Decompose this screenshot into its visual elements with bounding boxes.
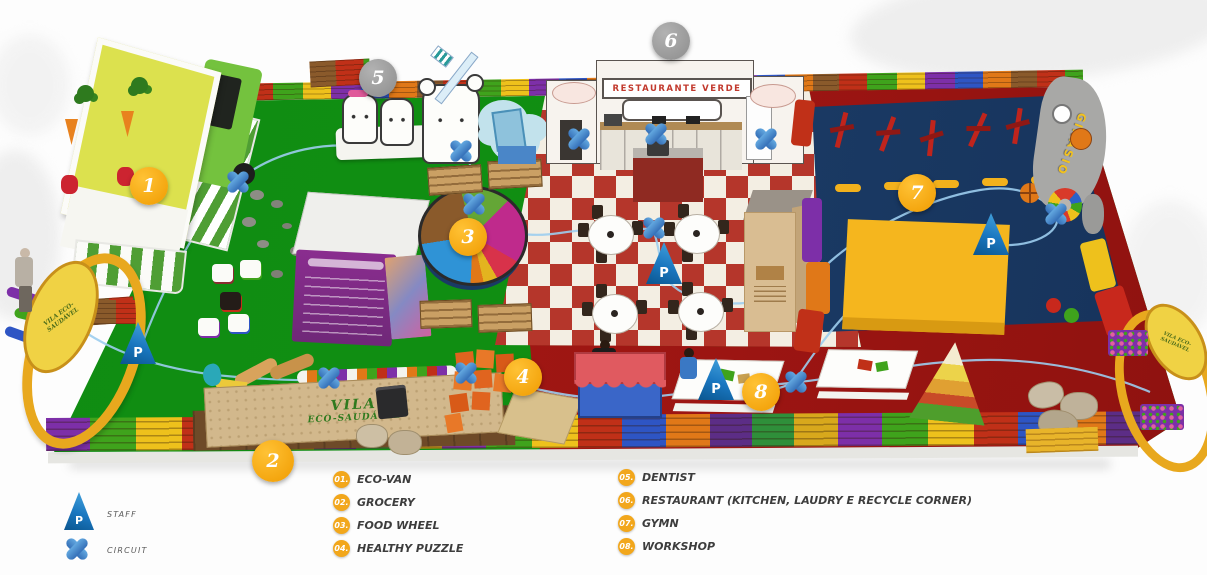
person	[12, 248, 42, 318]
legend-item-number: 08.	[618, 538, 635, 555]
cube-seat	[212, 264, 233, 282]
gym-equipment	[915, 116, 949, 161]
pallet-bench	[478, 303, 533, 333]
person	[676, 348, 706, 392]
speech-bubble	[750, 84, 796, 108]
info-booth	[290, 192, 435, 347]
gym-dashes	[835, 184, 861, 192]
legend-item-number: 04.	[333, 540, 350, 557]
legend-item-label: WORKSHOP	[642, 540, 715, 553]
legend-item: 04.HEALTHY PUZZLE	[333, 540, 463, 557]
circuit-marker	[641, 215, 667, 241]
eco-van	[55, 35, 255, 265]
legend-item-number: 06.	[618, 492, 635, 509]
flower-planter	[1140, 404, 1184, 430]
circuit-marker	[1043, 201, 1069, 227]
soft-block	[806, 262, 830, 314]
legend-column-1: 01.ECO-VAN 02.GROCERY 03.FOOD WHEEL 04.H…	[333, 471, 463, 557]
tooth-character	[342, 94, 378, 144]
beanbag	[388, 430, 422, 455]
soft-block	[802, 198, 822, 262]
circuit-marker	[566, 126, 592, 152]
dining-table	[578, 205, 644, 265]
cooktop	[686, 116, 700, 124]
badge-7: 7	[898, 174, 936, 212]
legend-staff-label: STAFF	[107, 510, 137, 519]
legend-item-label: GYMN	[642, 517, 679, 530]
cube-seat	[198, 318, 219, 336]
booth-menu-panel	[292, 249, 397, 346]
legend-column-2: 05.DENTIST 06.RESTAURANT (KITCHEN, LAUDR…	[618, 469, 972, 555]
legend-item-label: DENTIST	[642, 471, 695, 484]
pepper-icon	[61, 175, 78, 194]
legend-item-label: FOOD WHEEL	[357, 519, 440, 532]
legend-circuit-icon	[64, 536, 90, 562]
mascot-ear	[466, 74, 484, 92]
dining-table	[582, 284, 648, 344]
legend-item-number: 07.	[618, 515, 635, 532]
menu-board	[622, 99, 722, 121]
legend-item-number: 02.	[333, 494, 350, 511]
badge-3: 3	[449, 218, 487, 256]
legend-item-number: 01.	[333, 471, 350, 488]
play-ball	[1046, 298, 1061, 313]
circuit-marker	[643, 121, 669, 147]
pallet-bench	[420, 299, 473, 329]
badge-1: 1	[130, 167, 168, 205]
kraft-mat	[497, 387, 582, 444]
stepping-stones	[250, 190, 264, 200]
kitchen-island	[633, 148, 703, 202]
badge-6: 6	[652, 22, 690, 60]
mascot-gray	[1082, 194, 1104, 234]
gym-equipment	[828, 110, 856, 152]
vila-eco-saudavel-map: VILA ECO-SAUDÁVEL	[0, 0, 1207, 575]
clock-icon	[1052, 104, 1072, 124]
circuit-marker	[461, 191, 487, 217]
broccoli-icon	[77, 85, 94, 102]
circuit-marker	[753, 126, 779, 152]
toothbrush-bristles	[430, 45, 454, 68]
legend-item-label: HEALTHY PUZZLE	[357, 542, 463, 555]
flower-planter	[1108, 330, 1148, 356]
badge-4: 4	[504, 358, 542, 396]
circuit-marker	[225, 169, 251, 195]
legend-item: 06.RESTAURANT (KITCHEN, LAUDRY E RECYCLE…	[618, 492, 972, 509]
cube-seat	[228, 314, 249, 332]
legend-item-number: 03.	[333, 517, 350, 534]
legend-item: 07.GYMN	[618, 515, 972, 532]
restaurant-sign: RESTAURANTE VERDE	[602, 78, 752, 99]
legend-item-label: GROCERY	[357, 496, 415, 509]
legend-item-label: RESTAURANT (KITCHEN, LAUDRY E RECYCLE CO…	[642, 494, 972, 507]
mascot-ear	[418, 78, 436, 96]
cube-seat	[240, 260, 261, 278]
circuit-marker	[453, 360, 479, 386]
badge-8: 8	[742, 373, 780, 411]
tooth-character	[380, 98, 414, 146]
circuit-marker	[448, 138, 474, 164]
vendor-stand	[574, 340, 670, 424]
cash-register	[375, 385, 408, 420]
workshop-table	[814, 348, 918, 402]
legend-item-number: 05.	[618, 469, 635, 486]
legend-item-label: ECO-VAN	[357, 473, 411, 486]
legend-item: 05.DENTIST	[618, 469, 972, 486]
dining-table	[668, 282, 734, 342]
cube-seat	[220, 292, 241, 310]
gym-equipment	[1002, 105, 1034, 149]
sink-base	[498, 146, 536, 164]
badge-2: 2	[252, 440, 294, 482]
speech-bubble	[552, 82, 596, 104]
beanbag	[356, 424, 388, 448]
basketball-icon	[1070, 128, 1092, 150]
circuit-marker	[316, 365, 342, 391]
circuit-marker	[783, 369, 809, 395]
legend-item: 03.FOOD WHEEL	[333, 517, 463, 534]
legend-circuit-label: CIRCUIT	[107, 546, 148, 555]
legend-item: 01.ECO-VAN	[333, 471, 463, 488]
badge-5: 5	[359, 59, 397, 97]
dining-table	[664, 204, 730, 264]
microwave	[604, 114, 622, 126]
legend-item: 02.GROCERY	[333, 494, 463, 511]
play-ball	[1064, 308, 1079, 323]
legend-item: 08.WORKSHOP	[618, 538, 972, 555]
broccoli-icon	[131, 77, 148, 94]
pallet-stack	[1026, 427, 1099, 453]
gym-equipment	[872, 113, 904, 158]
